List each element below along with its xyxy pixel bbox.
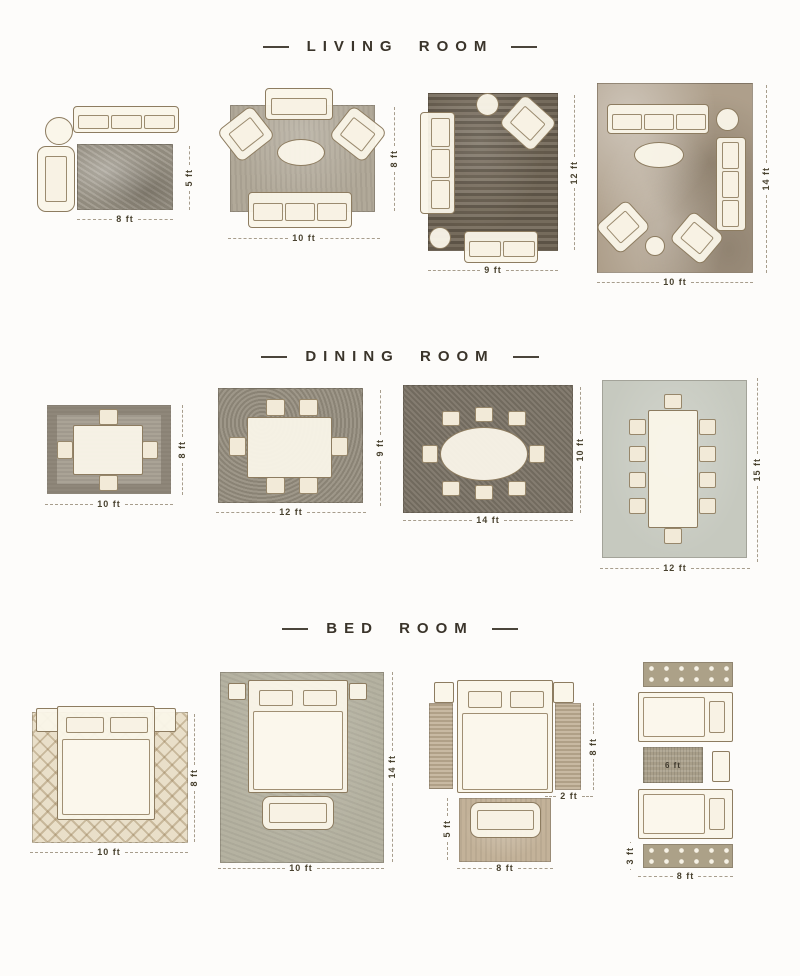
duvet: [643, 697, 705, 737]
pillow: [709, 798, 725, 830]
bedroom-layout-4: 6 ft 3 ft 8 ft: [0, 0, 800, 976]
nightstand: [712, 751, 730, 782]
duvet: [643, 794, 705, 834]
runner-width-label: 8 ft: [673, 872, 699, 881]
pillow: [709, 701, 725, 733]
dim-dash: [638, 876, 673, 877]
runner-height-label: 3 ft: [626, 843, 635, 869]
twin-bed: [638, 692, 733, 742]
runner-height-dimension: 3 ft: [626, 842, 635, 870]
twin-bed: [638, 789, 733, 839]
runner-rug: [643, 662, 733, 687]
rug-size-guide: LIVING ROOM 8 ft 5 ft: [0, 0, 800, 976]
between-beds-rug: 6 ft: [643, 747, 703, 783]
runner-width-dimension: 8 ft: [638, 872, 733, 881]
runner-rug: [643, 844, 733, 868]
between-rug-width-label: 6 ft: [665, 761, 681, 770]
dim-dash: [630, 869, 631, 870]
dim-dash: [698, 876, 733, 877]
